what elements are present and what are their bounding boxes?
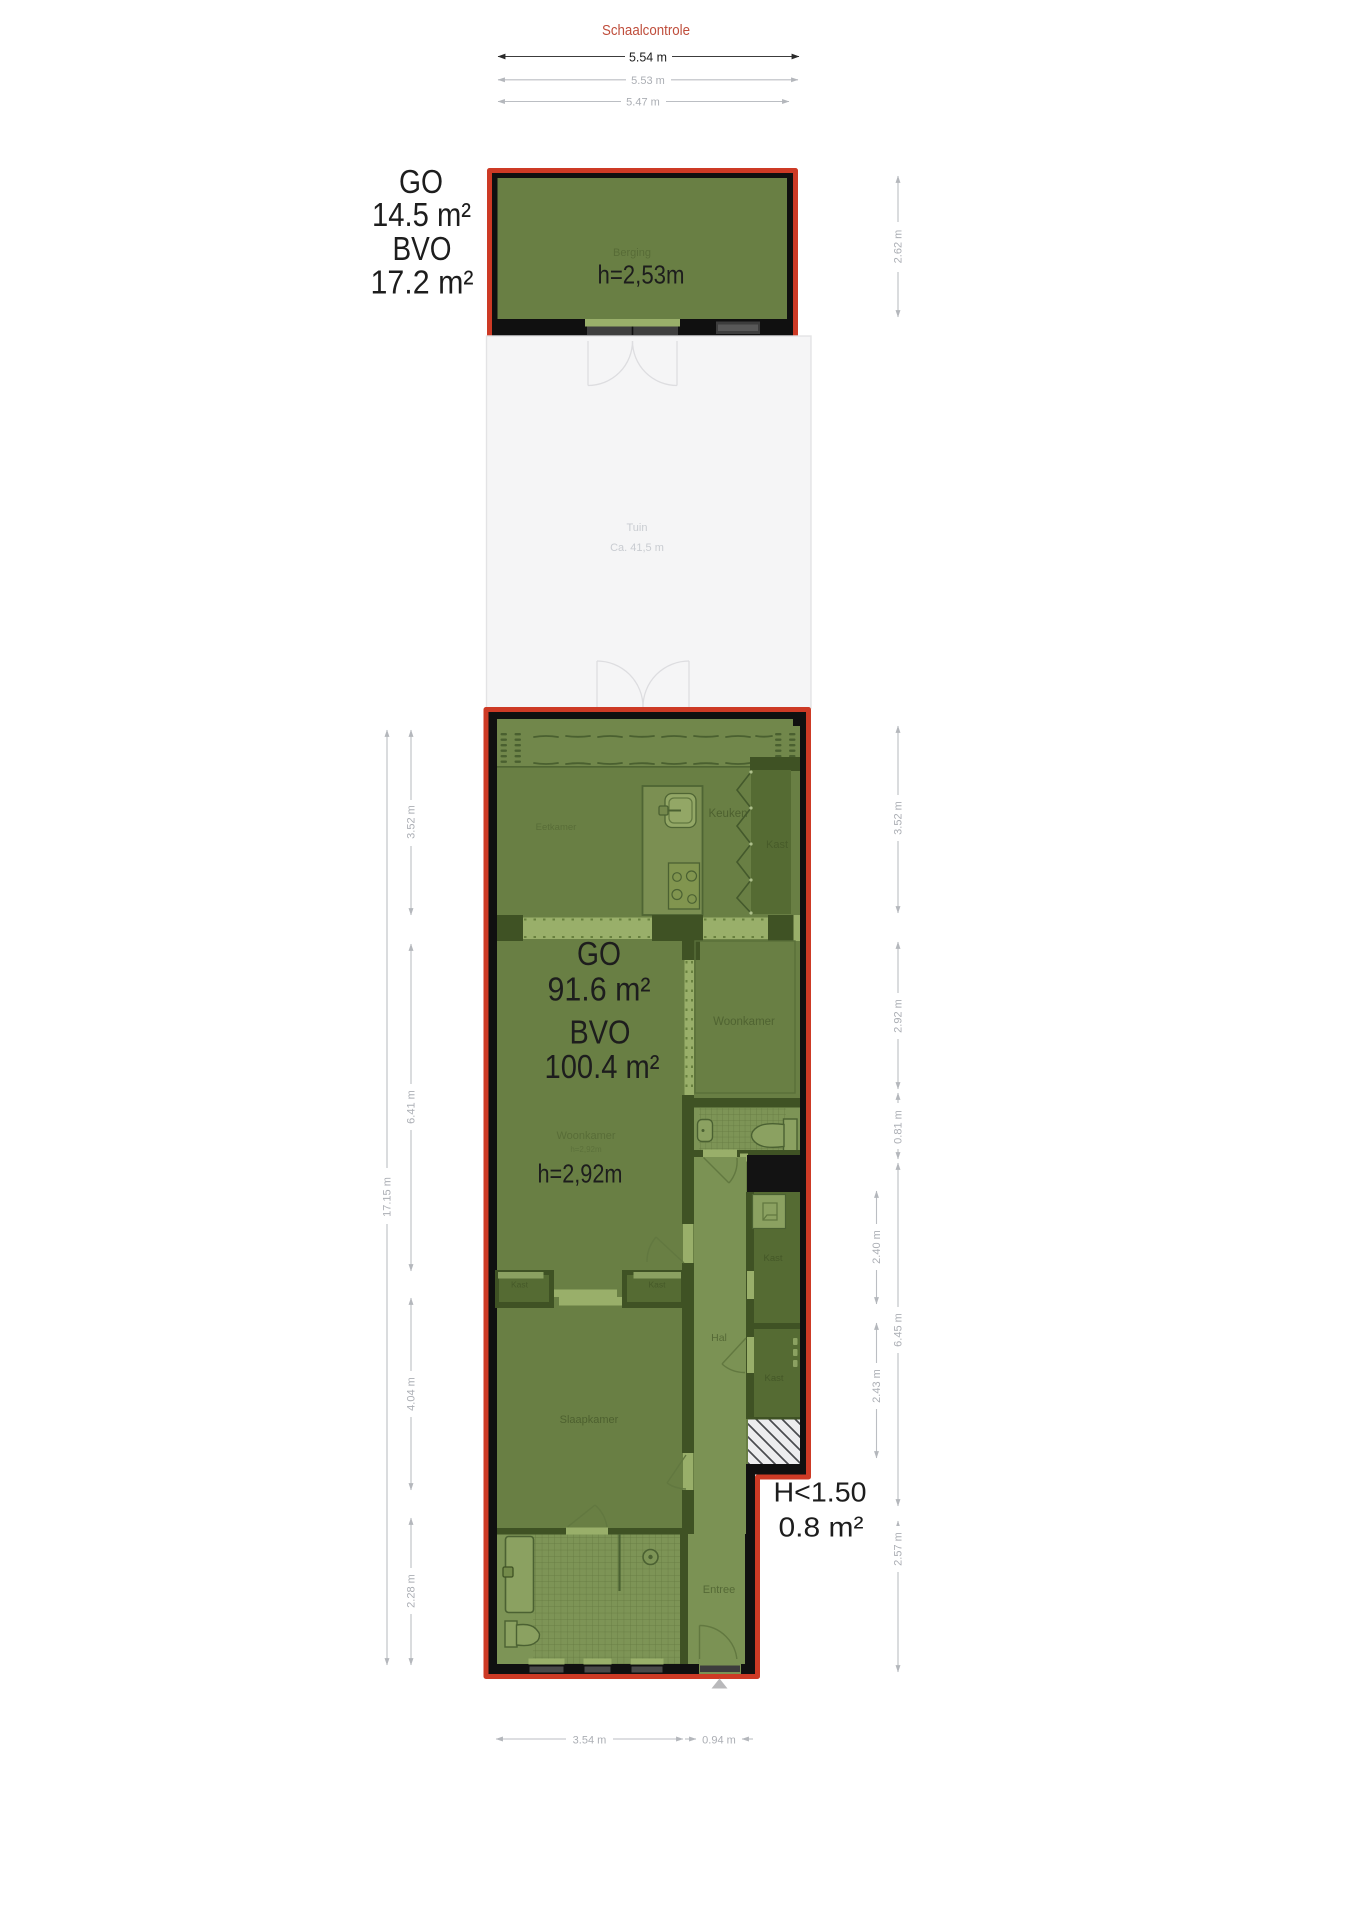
svg-text:100.4 m²: 100.4 m² <box>545 1048 660 1085</box>
svg-text:5.47 m: 5.47 m <box>626 97 660 109</box>
svg-text:Kast: Kast <box>766 839 788 851</box>
svg-text:Woonkamer: Woonkamer <box>556 1130 615 1142</box>
svg-text:17.15 m: 17.15 m <box>382 1177 394 1217</box>
svg-text:6.41 m: 6.41 m <box>406 1090 418 1124</box>
svg-text:Ca. 41,5 m: Ca. 41,5 m <box>610 542 664 554</box>
svg-text:17.2 m²: 17.2 m² <box>371 264 474 301</box>
svg-text:0.81 m: 0.81 m <box>893 1110 905 1144</box>
svg-text:14.5 m²: 14.5 m² <box>372 196 471 233</box>
svg-text:2.43 m: 2.43 m <box>871 1369 883 1403</box>
svg-text:BVO: BVO <box>570 1014 631 1051</box>
svg-text:Slaapkamer: Slaapkamer <box>560 1414 619 1426</box>
svg-text:0.8 m²: 0.8 m² <box>779 1512 864 1543</box>
svg-text:Kast: Kast <box>763 1253 782 1264</box>
svg-text:0.94 m: 0.94 m <box>702 1735 736 1747</box>
svg-text:5.54 m: 5.54 m <box>629 50 667 65</box>
svg-text:h=2,92m: h=2,92m <box>538 1159 623 1189</box>
svg-text:Schaalcontrole: Schaalcontrole <box>602 23 690 39</box>
svg-text:Tuin: Tuin <box>627 522 648 534</box>
svg-text:h=2,92m: h=2,92m <box>570 1145 602 1154</box>
svg-text:3.52 m: 3.52 m <box>406 805 418 839</box>
svg-text:2.40 m: 2.40 m <box>871 1230 883 1264</box>
svg-text:H<1.50: H<1.50 <box>774 1477 867 1508</box>
svg-text:5.53 m: 5.53 m <box>631 75 665 87</box>
svg-text:3.54 m: 3.54 m <box>573 1735 607 1747</box>
svg-text:Woonkamer: Woonkamer <box>713 1016 775 1028</box>
svg-text:Kast: Kast <box>511 1280 529 1290</box>
svg-text:h=2,53m: h=2,53m <box>598 260 685 290</box>
svg-text:91.6 m²: 91.6 m² <box>548 971 651 1008</box>
svg-text:Berging: Berging <box>613 247 651 259</box>
svg-text:Eetkamer: Eetkamer <box>536 822 577 833</box>
svg-text:Hal: Hal <box>711 1332 727 1344</box>
svg-text:BVO: BVO <box>393 230 452 267</box>
svg-text:6.45 m: 6.45 m <box>893 1313 905 1347</box>
svg-text:2.92 m: 2.92 m <box>893 999 905 1033</box>
svg-text:GO: GO <box>577 935 621 972</box>
svg-text:Entree: Entree <box>703 1584 735 1596</box>
svg-text:3.52 m: 3.52 m <box>893 801 905 835</box>
svg-text:Kast: Kast <box>648 1280 666 1290</box>
svg-text:4.04 m: 4.04 m <box>406 1377 418 1411</box>
svg-text:GO: GO <box>399 163 443 200</box>
svg-text:Kast: Kast <box>764 1373 783 1384</box>
svg-text:2.28 m: 2.28 m <box>406 1574 418 1608</box>
svg-text:2.57 m: 2.57 m <box>893 1532 905 1566</box>
svg-text:2.62 m: 2.62 m <box>893 230 905 264</box>
svg-text:Keuken: Keuken <box>708 808 747 820</box>
